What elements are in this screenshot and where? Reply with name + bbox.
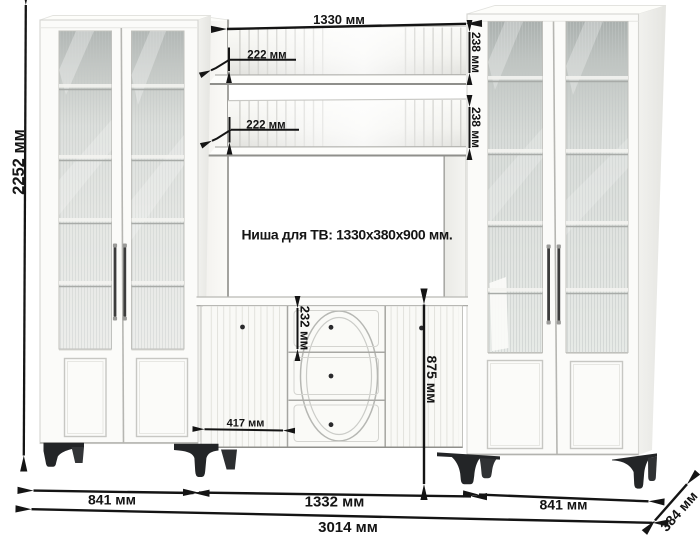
svg-text:841 мм: 841 мм xyxy=(88,492,136,508)
svg-text:238 мм: 238 мм xyxy=(469,32,483,73)
svg-text:238 мм: 238 мм xyxy=(469,107,483,148)
svg-text:3014 мм: 3014 мм xyxy=(318,519,378,536)
svg-text:1330 мм: 1330 мм xyxy=(313,12,365,27)
svg-text:Ниша для ТВ: 1330x380x900 мм.: Ниша для ТВ: 1330x380x900 мм. xyxy=(242,227,453,243)
svg-text:1332 мм: 1332 мм xyxy=(305,494,365,511)
svg-text:2252 мм: 2252 мм xyxy=(10,129,28,195)
svg-text:875 мм: 875 мм xyxy=(424,356,440,404)
svg-text:232 мм: 232 мм xyxy=(298,306,313,351)
svg-text:417 мм: 417 мм xyxy=(227,418,265,430)
svg-text:841 мм: 841 мм xyxy=(540,497,588,513)
